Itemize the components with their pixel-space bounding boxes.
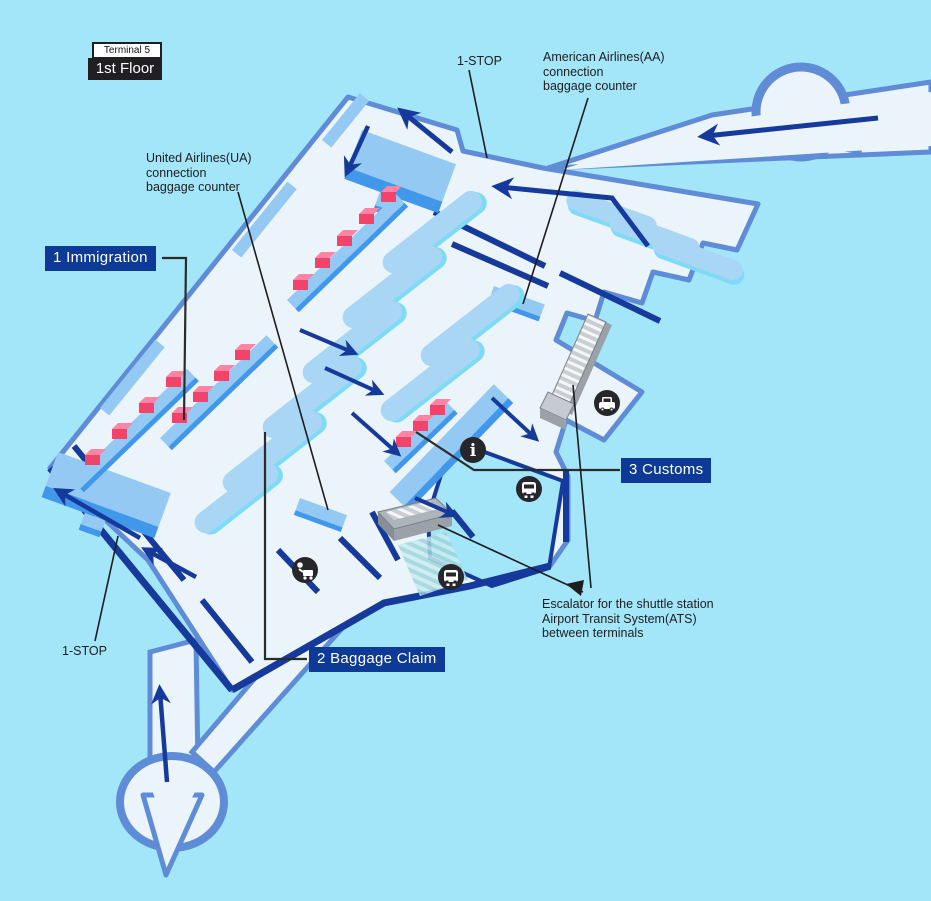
map-canvas: i [0, 0, 931, 901]
info-icon: i [460, 437, 486, 463]
svg-text:i: i [470, 441, 477, 461]
floor-name: 1st Floor [88, 58, 162, 80]
bus-icon [516, 476, 542, 502]
label-ua-counter: United Airlines(UA) connection baggage c… [146, 151, 252, 195]
airport-terminal-map: i Terminal 5 1st Floor 1-STOP American A… [0, 0, 931, 901]
label-one-stop-bottom: 1-STOP [62, 644, 107, 659]
callout-customs: 3 Customs [621, 458, 711, 483]
terminal-name: Terminal 5 [92, 42, 162, 59]
taxi-icon [594, 390, 620, 416]
callout-baggage-claim: 2 Baggage Claim [309, 647, 445, 672]
baggage-cart-icon [292, 557, 318, 583]
bus-icon [438, 564, 464, 590]
label-escalator: Escalator for the shuttle station Airpor… [542, 597, 714, 641]
label-aa-counter: American Airlines(AA) connection baggage… [543, 50, 665, 94]
floor-badge: Terminal 5 1st Floor [88, 42, 162, 80]
callout-immigration: 1 Immigration [45, 246, 156, 271]
label-one-stop-top: 1-STOP [457, 54, 502, 69]
